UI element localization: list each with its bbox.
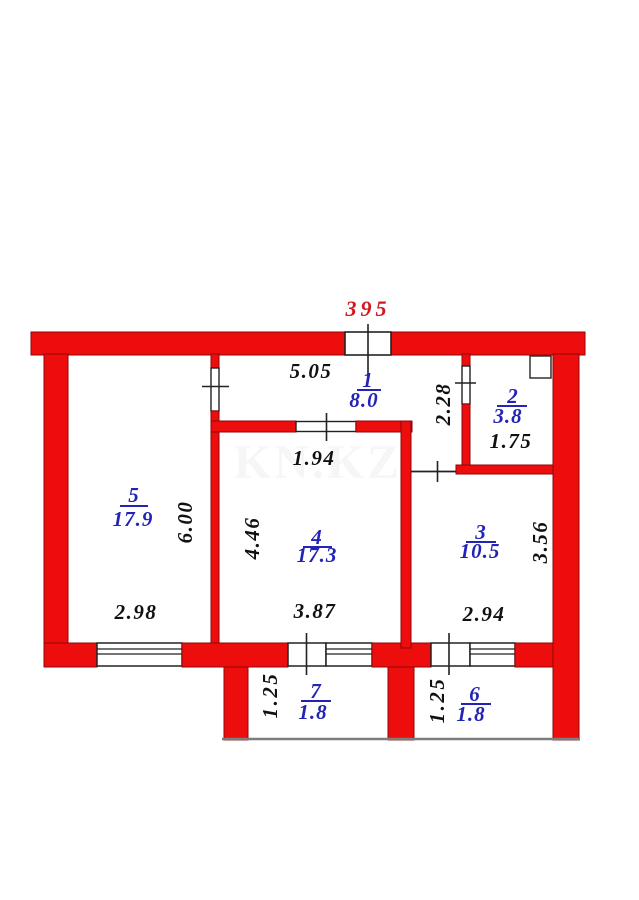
svg-text:2.94: 2.94 bbox=[462, 602, 506, 626]
svg-text:1.94: 1.94 bbox=[293, 446, 336, 470]
svg-text:3.87: 3.87 bbox=[293, 599, 337, 623]
svg-text:395: 395 bbox=[345, 296, 391, 321]
svg-text:17.3: 17.3 bbox=[297, 543, 338, 567]
svg-text:5: 5 bbox=[128, 483, 140, 507]
svg-text:1.25: 1.25 bbox=[258, 672, 282, 719]
svg-text:8.0: 8.0 bbox=[349, 388, 378, 412]
svg-text:1.8: 1.8 bbox=[298, 700, 327, 724]
svg-text:1.8: 1.8 bbox=[456, 702, 485, 726]
svg-text:3.56: 3.56 bbox=[528, 521, 552, 565]
svg-text:1.25: 1.25 bbox=[425, 677, 449, 724]
svg-text:2.98: 2.98 bbox=[114, 600, 158, 624]
svg-text:10.5: 10.5 bbox=[460, 539, 501, 563]
svg-text:1.75: 1.75 bbox=[490, 429, 533, 453]
svg-text:4.46: 4.46 bbox=[240, 517, 264, 561]
svg-text:6.00: 6.00 bbox=[173, 501, 197, 544]
svg-text:17.9: 17.9 bbox=[113, 507, 154, 531]
svg-text:3.8: 3.8 bbox=[492, 404, 522, 428]
svg-text:2.28: 2.28 bbox=[431, 383, 455, 427]
svg-text:5.05: 5.05 bbox=[290, 359, 333, 383]
